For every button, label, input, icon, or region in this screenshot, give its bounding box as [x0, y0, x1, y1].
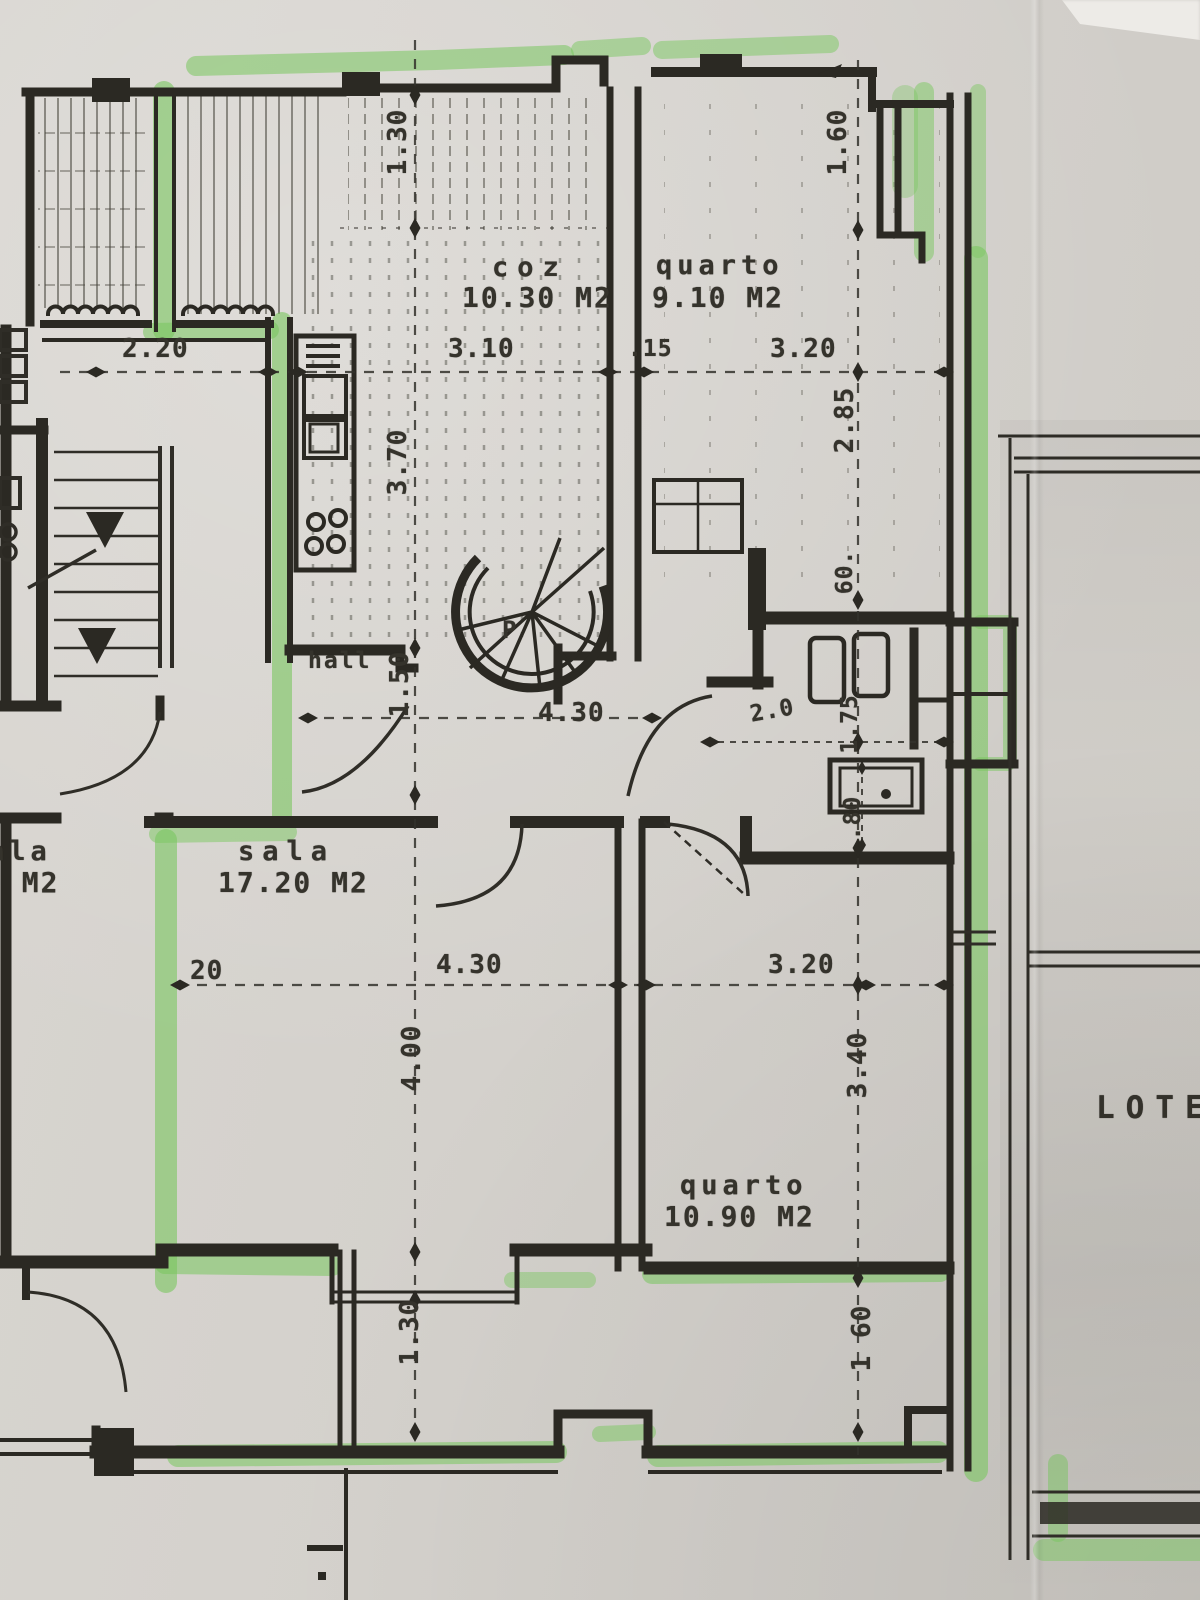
dim-bedroom-top-depth: 2.85 — [825, 380, 865, 460]
dim-hall-depth: 1.50 — [380, 644, 420, 724]
floorplan-photo: coz 10.30 M2 quarto 9.10 M2 sala 17.20 M… — [0, 0, 1200, 1600]
dim-bath-depth: 1.75 — [830, 686, 870, 762]
stair-letter: P — [502, 616, 516, 644]
dim-kitchen-depth: 3.70 — [378, 422, 418, 502]
room-label-bedroom-bottom: quarto — [680, 1170, 808, 1201]
dim-wall-thickness: .15 — [628, 336, 673, 362]
dim-bottom-right-depth: 1 60 — [842, 1298, 882, 1378]
dim-shaft-width: 60. — [825, 539, 865, 605]
room-label-living: sala — [238, 836, 335, 867]
dim-neighbor-width: 2.20 — [122, 334, 189, 364]
room-label-hall: hall — [308, 648, 371, 674]
room-area-bedroom-top: 9.10 M2 — [652, 281, 784, 314]
dim-top-right-depth: 1.60 — [818, 102, 858, 182]
dim-living-width: 4.30 — [436, 950, 503, 980]
dim-door-width: .80 — [833, 783, 873, 853]
dim-bedroom-top-width: 3.20 — [770, 334, 837, 364]
room-label-bedroom-top: quarto — [656, 250, 784, 281]
dim-bedroom-bottom-depth: 3.40 — [838, 1025, 878, 1105]
room-area-bedroom-bottom: 10.90 M2 — [664, 1200, 815, 1233]
room-area-neighbor-living: 0 M2 — [0, 866, 59, 899]
room-area-kitchen: 10.30 M2 — [462, 281, 613, 314]
room-label-kitchen: coz — [492, 252, 568, 283]
photo-shadow — [1000, 420, 1200, 1600]
dim-bedroom-bottom-width: 3.20 — [768, 950, 835, 980]
room-label-neighbor-living: ala — [0, 836, 52, 867]
dim-kitchen-width: 3.10 — [448, 334, 515, 364]
dim-bottom-depth: 1.30 — [390, 1292, 430, 1372]
dim-living-depth: 4.00 — [392, 1018, 432, 1098]
dim-wall-20: 20 — [190, 956, 223, 986]
dim-hall-width: 4.30 — [538, 698, 605, 728]
dim-top-depth: 1.30 — [378, 102, 418, 182]
room-area-living: 17.20 M2 — [218, 866, 369, 899]
